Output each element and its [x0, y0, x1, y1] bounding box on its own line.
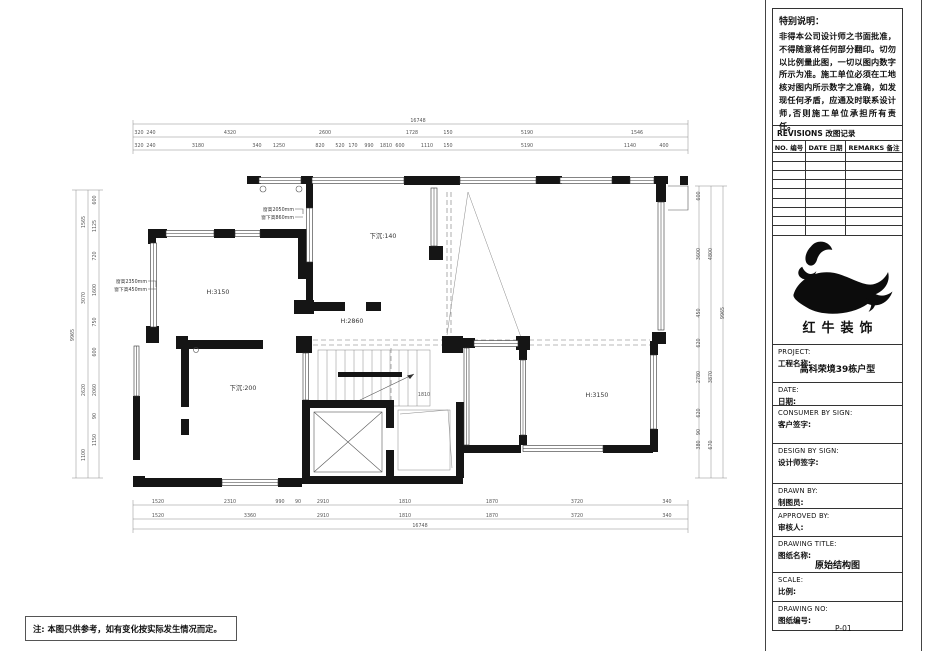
- revision-cell: [773, 208, 806, 216]
- plan-label: 240: [146, 130, 155, 136]
- plan-label: 3600: [696, 248, 702, 260]
- plan-label: 9965: [70, 329, 76, 341]
- plan-label: 下沉:140: [370, 232, 397, 240]
- drawn-label-cn: 制图员:: [778, 497, 897, 508]
- revision-cell: [806, 189, 846, 197]
- plan-label: 600: [696, 191, 702, 200]
- plan-label: 1150: [92, 434, 98, 446]
- revision-cell: [846, 180, 902, 188]
- revision-cell: [773, 171, 806, 179]
- plan-label: 1100: [81, 449, 87, 461]
- plan-label: 450: [696, 308, 702, 317]
- special-notes: 特别说明： 非得本公司设计师之书面批准，不得随意将任何部分翻印。切勿以比例量此图…: [773, 9, 902, 126]
- approved-label-en: APPROVED BY:: [778, 512, 897, 520]
- plan-label: 400: [659, 143, 668, 149]
- field-project: PROJECT: 工程名称: 高科荣境39栋户型: [773, 345, 902, 383]
- revision-row: [773, 208, 902, 217]
- plan-label: 1810: [380, 143, 392, 149]
- project-label-en: PROJECT:: [778, 348, 897, 356]
- plan-label: 90: [295, 499, 301, 505]
- plan-label: 1110: [421, 143, 433, 149]
- plan-label: 2310: [224, 499, 236, 505]
- plan-label: 3070: [81, 292, 87, 304]
- sheet-right-edge: [921, 0, 922, 651]
- plan-label: 990: [275, 499, 284, 505]
- plan-label: 520: [335, 143, 344, 149]
- revision-cell: [773, 217, 806, 225]
- drawing-no-value: P-01: [835, 624, 852, 633]
- disclaimer-note: 注: 本图只供参考，如有变化按实际发生情况而定。: [25, 616, 237, 641]
- consumer-label-en: CONSUMER BY SIGN:: [778, 409, 897, 417]
- plan-label: 600: [92, 347, 98, 356]
- drawing-title-label-en: DRAWING TITLE:: [778, 540, 897, 548]
- revisions-col-remarks: REMARKS 备注: [846, 141, 902, 152]
- title-block: 特别说明： 非得本公司设计师之书面批准，不得随意将任何部分翻印。切勿以比例量此图…: [772, 8, 903, 631]
- revision-cell: [773, 189, 806, 197]
- plan-label: 4800: [708, 248, 714, 260]
- plan-label: 1546: [631, 130, 643, 136]
- field-consumer-sign: CONSUMER BY SIGN: 客户签字:: [773, 406, 902, 444]
- revision-cell: [846, 217, 902, 225]
- plan-label: 3180: [192, 143, 204, 149]
- revision-cell: [846, 189, 902, 197]
- scale-label-en: SCALE:: [778, 576, 897, 584]
- revisions-title: REVISIONS 改图记录: [773, 126, 902, 141]
- plan-label: 150: [443, 143, 452, 149]
- plan-label: 340: [662, 513, 671, 519]
- revision-cell: [806, 171, 846, 179]
- field-approved-by: APPROVED BY: 审核人:: [773, 509, 902, 537]
- consumer-label-cn: 客户签字:: [778, 419, 897, 430]
- company-logo: 红牛装饰: [773, 236, 902, 345]
- plan-label: 16748: [412, 523, 427, 529]
- field-design-sign: DESIGN BY SIGN: 设计师签字:: [773, 444, 902, 484]
- plan-label: 2780: [696, 371, 702, 383]
- revisions-rows: [773, 153, 902, 235]
- revision-row: [773, 153, 902, 162]
- plan-label: 380: [696, 440, 702, 449]
- field-drawing-title: DRAWING TITLE: 图纸名称: 原始结构图: [773, 537, 902, 574]
- plan-label: 620: [696, 338, 702, 347]
- revision-row: [773, 226, 902, 235]
- drawing-no-label-en: DRAWING NO:: [778, 605, 897, 613]
- field-date: DATE: 日期:: [773, 383, 902, 406]
- plan-label: 9965: [720, 307, 726, 319]
- revision-row: [773, 162, 902, 171]
- plan-label: 340: [662, 499, 671, 505]
- plan-label: 5190: [521, 130, 533, 136]
- plan-label: 下沉:200: [230, 384, 257, 392]
- plan-label: 窗下高860mm: [261, 214, 294, 221]
- windows: [134, 178, 664, 486]
- revision-row: [773, 171, 902, 180]
- plan-label: 1600: [92, 284, 98, 296]
- revision-cell: [806, 199, 846, 207]
- date-label-en: DATE:: [778, 386, 897, 394]
- revision-cell: [806, 226, 846, 235]
- special-notes-title: 特别说明：: [779, 14, 896, 27]
- plan-label: 3720: [571, 499, 583, 505]
- plan-label: 990: [364, 143, 373, 149]
- plan-label: 720: [92, 251, 98, 260]
- revision-row: [773, 199, 902, 208]
- special-notes-body: 非得本公司设计师之书面批准，不得随意将任何部分翻印。切勿以比例量此图，一切以图内…: [779, 30, 896, 132]
- plan-label: 150: [443, 130, 452, 136]
- revision-cell: [846, 153, 902, 161]
- revision-cell: [806, 162, 846, 170]
- plan-label: 1810: [399, 499, 411, 505]
- plan-label: 620: [696, 408, 702, 417]
- field-scale: SCALE: 比例:: [773, 573, 902, 602]
- plan-label: 窗高2050mm: [263, 206, 294, 213]
- plan-label: 2600: [319, 130, 331, 136]
- revision-cell: [846, 171, 902, 179]
- plan-label: 320: [134, 130, 143, 136]
- plan-label: 窗高2350mm: [116, 278, 147, 285]
- revision-cell: [806, 180, 846, 188]
- revision-row: [773, 180, 902, 189]
- plan-label: 1520: [152, 513, 164, 519]
- revision-cell: [846, 199, 902, 207]
- revision-cell: [773, 226, 806, 235]
- sheet-divider: [765, 0, 766, 651]
- plan-label: 4320: [224, 130, 236, 136]
- plan-label: 1810: [418, 392, 430, 398]
- revision-cell: [846, 208, 902, 216]
- plan-label: 1125: [92, 220, 98, 232]
- plan-label: 1140: [624, 143, 636, 149]
- beam-dashed-lines: [313, 192, 650, 402]
- plan-label: H:2860: [341, 318, 364, 325]
- plan-label: 2060: [92, 384, 98, 396]
- revision-cell: [806, 153, 846, 161]
- walls: [133, 176, 688, 487]
- revision-cell: [806, 217, 846, 225]
- revision-cell: [773, 199, 806, 207]
- revision-cell: [806, 208, 846, 216]
- plan-label: 1810: [399, 513, 411, 519]
- plan-label: H:3150: [207, 289, 230, 296]
- revisions-header: NO. 编号 DATE 日期 REMARKS 备注: [773, 141, 902, 153]
- note-leaders: [148, 209, 303, 289]
- drawn-label-en: DRAWN BY:: [778, 487, 897, 495]
- plan-label: 1728: [406, 130, 418, 136]
- bull-logo-icon: [781, 240, 896, 320]
- staircase: [318, 350, 430, 406]
- plan-label: 3360: [244, 513, 256, 519]
- revisions-table: NO. 编号 DATE 日期 REMARKS 备注: [773, 141, 902, 236]
- company-name: 红牛装饰: [773, 317, 902, 336]
- balcony-notch: [668, 186, 688, 210]
- plan-label: 320: [134, 143, 143, 149]
- plan-label: 1870: [486, 513, 498, 519]
- floor-plan: 1674832024043202600172815051901546320240…: [0, 0, 765, 651]
- plan-label: 5190: [521, 143, 533, 149]
- plan-label: 1250: [273, 143, 285, 149]
- plan-label: 670: [708, 440, 714, 449]
- plan-label: H:3150: [586, 392, 609, 399]
- plan-label: 3870: [708, 371, 714, 383]
- revision-cell: [773, 153, 806, 161]
- plan-label: 600: [395, 143, 404, 149]
- plan-label: 2910: [317, 499, 329, 505]
- plan-label: 820: [315, 143, 324, 149]
- revisions-col-no: NO. 编号: [773, 141, 806, 152]
- plan-label: 750: [92, 317, 98, 326]
- scale-label-cn: 比例:: [778, 586, 897, 597]
- drawing-title-value: 原始结构图: [773, 558, 902, 571]
- revision-cell: [773, 180, 806, 188]
- plan-label: 170: [348, 143, 357, 149]
- plan-label: 2910: [317, 513, 329, 519]
- revision-row: [773, 189, 902, 198]
- approved-label-cn: 审核人:: [778, 522, 897, 533]
- plan-label: 240: [146, 143, 155, 149]
- plan-label: 3720: [571, 513, 583, 519]
- plan-label: 340: [252, 143, 261, 149]
- revision-cell: [846, 162, 902, 170]
- plan-label: 600: [92, 195, 98, 204]
- plan-label: 90: [696, 429, 702, 435]
- revision-cell: [846, 226, 902, 235]
- field-drawn-by: DRAWN BY: 制图员:: [773, 484, 902, 509]
- plan-label: 1520: [152, 499, 164, 505]
- plan-label: 90: [92, 413, 98, 419]
- elevator-shaft: [302, 400, 396, 484]
- plan-label: 窗下高450mm: [114, 286, 147, 293]
- field-drawing-no: DRAWING NO: 图纸编号: P-01: [773, 602, 902, 630]
- plan-label: 16748: [410, 118, 425, 124]
- revisions-col-date: DATE 日期: [806, 141, 846, 152]
- plan-label: 1870: [486, 499, 498, 505]
- revision-cell: [773, 162, 806, 170]
- revision-row: [773, 217, 902, 226]
- project-value: 高科荣境39栋户型: [773, 362, 902, 375]
- plan-label: 1565: [81, 216, 87, 228]
- drawing-sheet: { "sheet": { "note_bottom_left": "注: 本图只…: [0, 0, 925, 651]
- design-label-cn: 设计师签字:: [778, 457, 897, 468]
- secondary-shaft: [398, 410, 452, 470]
- leader-diagonals: [447, 192, 522, 340]
- design-label-en: DESIGN BY SIGN:: [778, 447, 897, 455]
- plan-label: 2620: [81, 384, 87, 396]
